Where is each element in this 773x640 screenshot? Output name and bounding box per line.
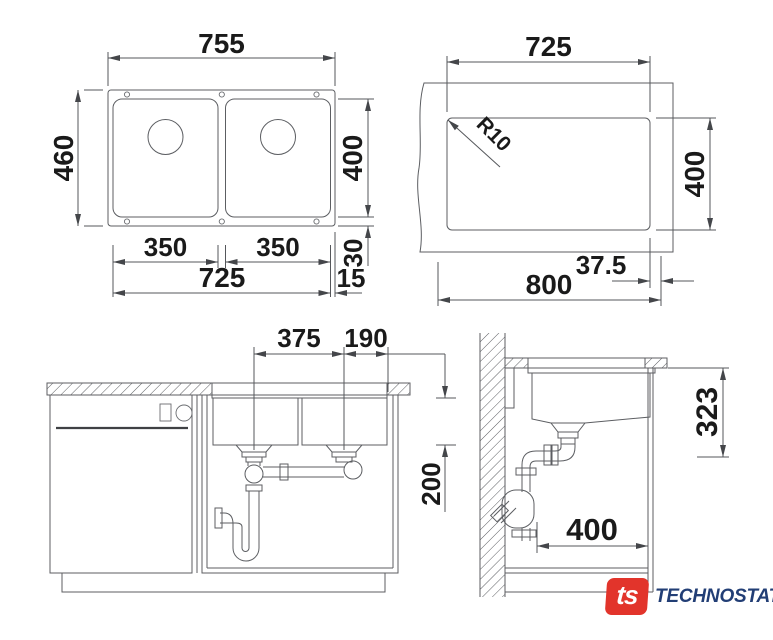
wall-section <box>480 333 505 597</box>
dim-bowls-span-label: 725 <box>199 262 246 293</box>
dim-rear-margin: 30 <box>338 226 374 267</box>
view-sink-top: 755 460 400 30 350 350 <box>48 28 374 297</box>
dishwasher-control-knob <box>176 405 192 421</box>
dim-bowl-right-width-label: 350 <box>256 232 299 262</box>
dim-side-margin-label: 15 <box>337 263 366 293</box>
ball-joint-right <box>344 461 362 479</box>
dim-cutout-depth: 400 <box>656 118 716 230</box>
dim-cutout-width: 725 <box>447 31 650 112</box>
logo-mark: ts <box>605 578 650 615</box>
dim-bowl-left-width-label: 350 <box>144 232 187 262</box>
waste-piping-front <box>215 461 362 561</box>
countertop-piece <box>418 83 673 252</box>
dim-cabinet-width: 800 <box>438 262 661 306</box>
view-side-installation: 323 400 <box>480 333 729 597</box>
p-trap-outer <box>220 512 259 561</box>
bowl-left <box>113 99 218 217</box>
countertop-front <box>47 383 410 398</box>
dim-cabinet-width-label: 800 <box>526 269 573 300</box>
drain-hole-right <box>261 120 296 155</box>
ball-joint-left <box>245 465 263 483</box>
dim-depth-below-top: 200 <box>416 354 456 512</box>
dim-overall-width-label: 755 <box>198 28 245 59</box>
dim-overall-width: 755 <box>108 28 335 86</box>
dim-overall-depth-label: 460 <box>48 135 79 182</box>
dim-depth-below-top-label: 200 <box>416 462 446 505</box>
drain-assembly-side <box>551 423 585 444</box>
cutout-opening <box>447 118 650 230</box>
dishwasher-cabinet <box>50 395 192 573</box>
dim-edge-offset: 37.5 <box>576 238 694 306</box>
dim-trap-to-front: 400 <box>537 512 648 553</box>
dim-mounting-depth-label: 323 <box>691 387 724 437</box>
dim-bowl-depth-label: 400 <box>337 135 368 182</box>
dishwasher-control-panel <box>160 404 171 421</box>
p-trap-inner <box>220 512 249 552</box>
bowl-right <box>226 99 331 217</box>
dim-overall-depth: 460 <box>48 90 103 226</box>
dim-drain-spacing-label: 375 <box>277 323 320 353</box>
dim-bowls-span: 725 <box>113 262 331 293</box>
wall-batten <box>505 368 514 408</box>
dim-mounting-depth: 323 <box>668 368 729 457</box>
dim-edge-offset-label: 37.5 <box>576 250 627 280</box>
dim-bowl-depth: 400 <box>337 99 374 217</box>
brand-logo: ts TECHNOSTATUS <box>606 578 773 615</box>
dim-drain-to-edge: 190 <box>344 323 445 354</box>
sink-outline <box>108 90 335 226</box>
bowls-front <box>213 398 387 445</box>
technical-drawing-sheet: 755 460 400 30 350 350 <box>0 0 773 640</box>
plinth <box>62 573 385 592</box>
view-cutout-template: R10 725 400 37.5 800 <box>418 31 716 306</box>
dim-trap-to-front-label: 400 <box>566 512 618 547</box>
sink-rim-side <box>528 368 655 373</box>
countertop-side <box>505 358 667 408</box>
bowl-side <box>532 373 650 423</box>
dim-cutout-width-label: 725 <box>525 31 572 62</box>
dim-drain-to-edge-label: 190 <box>344 323 387 353</box>
view-front-installation: 375 190 200 <box>47 323 456 592</box>
cabinet-side <box>505 368 653 592</box>
dim-cutout-depth-label: 400 <box>679 151 710 198</box>
dim-corner-radius-label: R10 <box>472 113 516 157</box>
drawing-canvas: 755 460 400 30 350 350 <box>0 0 773 640</box>
mounting-holes <box>124 92 319 224</box>
drain-hole-left <box>148 120 183 155</box>
dim-corner-radius: R10 <box>448 113 515 167</box>
logo-brand-text: TECHNOSTATUS <box>655 586 773 608</box>
